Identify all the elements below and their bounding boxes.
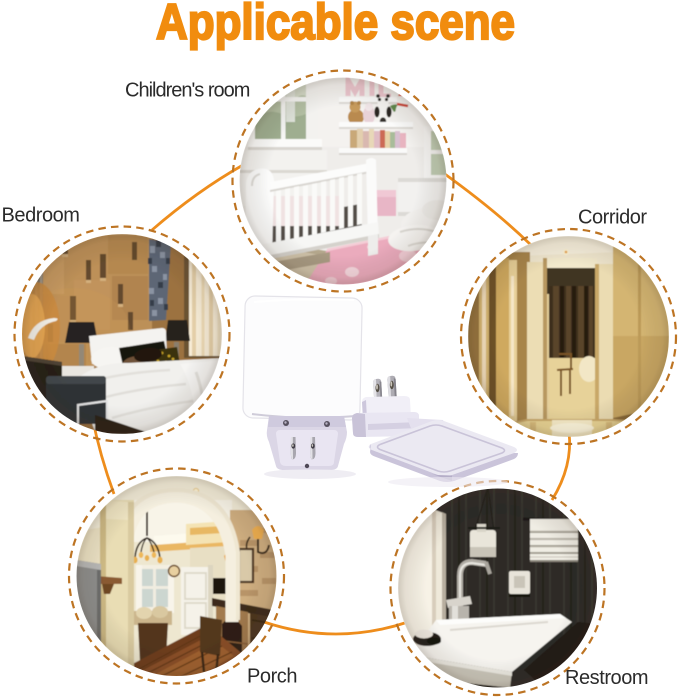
svg-text:Restroom: Restroom bbox=[565, 667, 648, 689]
svg-text:Applicable scene: Applicable scene bbox=[156, 0, 515, 50]
svg-text:Children's room: Children's room bbox=[125, 80, 250, 102]
svg-text:Bedroom: Bedroom bbox=[2, 205, 80, 227]
svg-text:Porch: Porch bbox=[247, 666, 297, 688]
svg-text:Corridor: Corridor bbox=[578, 207, 647, 229]
